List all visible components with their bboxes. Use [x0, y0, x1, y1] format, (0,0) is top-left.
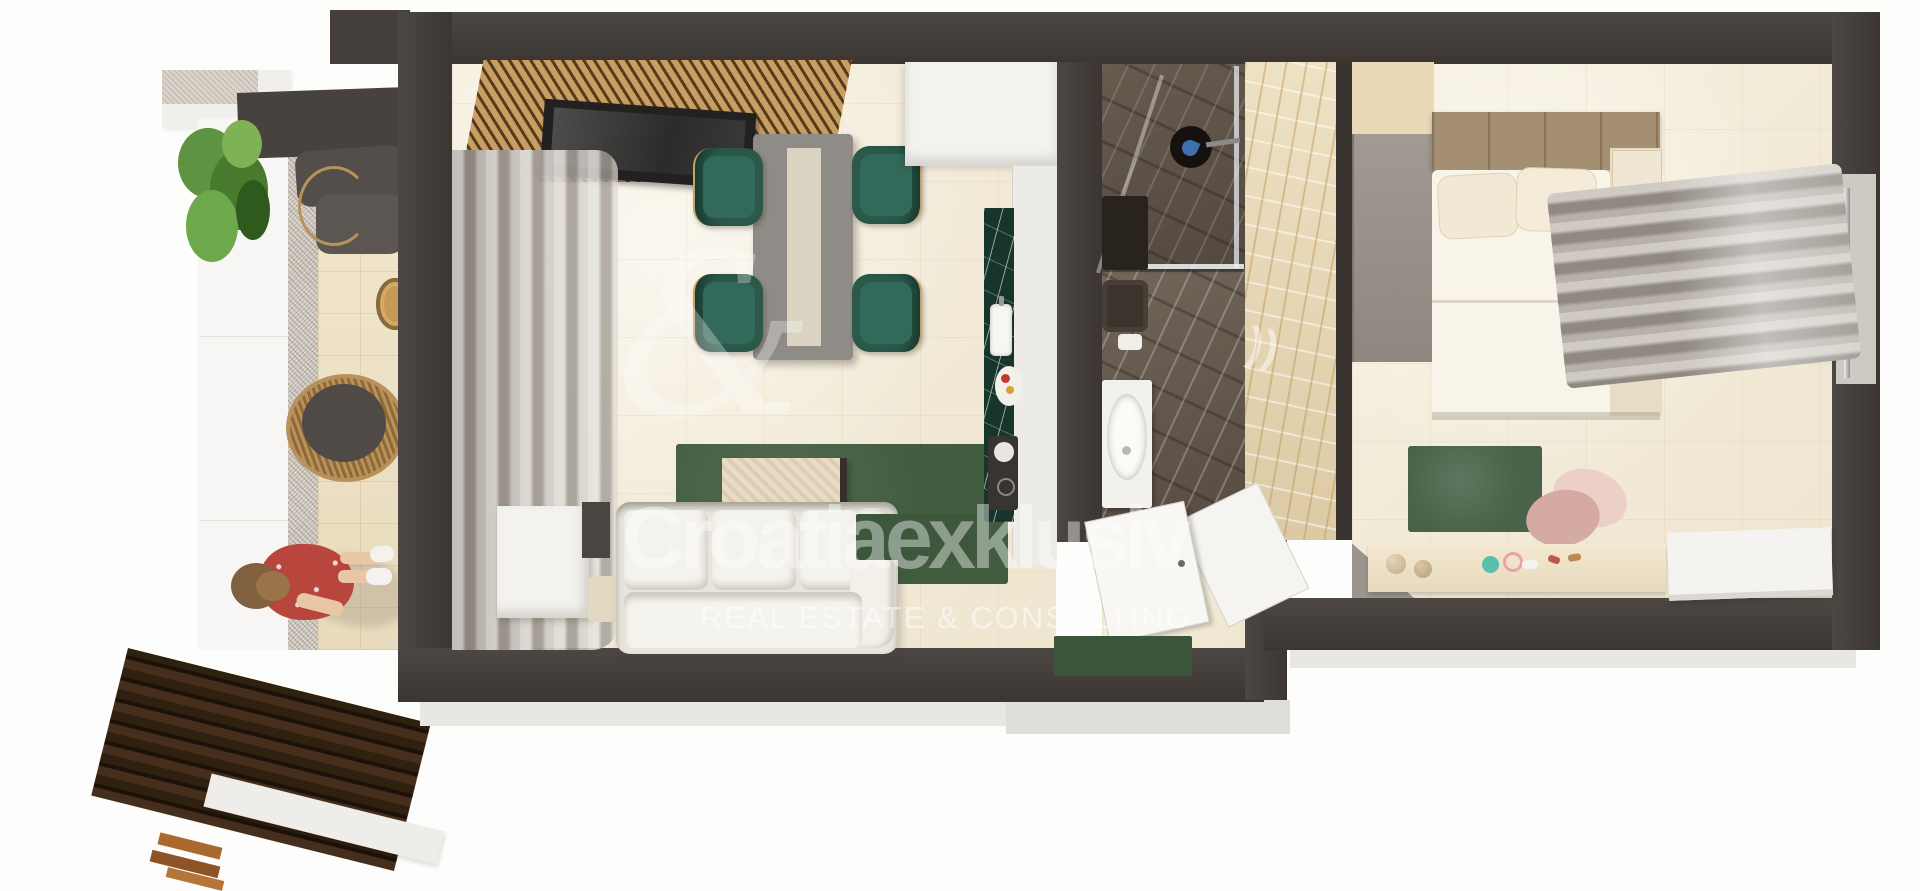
- dining-chair: [852, 274, 922, 352]
- side-table: [497, 506, 589, 618]
- decor-bowl: [1386, 554, 1406, 574]
- dish: [994, 442, 1014, 462]
- pillow: [1436, 172, 1519, 240]
- sink-basin: [1107, 394, 1147, 480]
- basin-tap: [1122, 446, 1131, 455]
- planter-foliage: [236, 180, 270, 240]
- person-shoe: [366, 568, 392, 585]
- decor-bowl: [1414, 560, 1432, 578]
- kitchen-tall-cabinets: [905, 62, 1057, 166]
- planter-foliage: [186, 190, 238, 262]
- fruit: [1006, 386, 1014, 394]
- wall-bedroom-bottom: [1264, 598, 1880, 650]
- outer-slab: [1290, 648, 1856, 668]
- bed-foot-shadow: [1432, 412, 1660, 420]
- bathroom-gold-marble-wall: [1245, 62, 1341, 540]
- watermark-logo-ampersand: &: [615, 225, 815, 450]
- speaker: [582, 502, 610, 558]
- shower-glass-panel: [1234, 66, 1239, 268]
- watermark-brand: Croatiaexklusiv: [622, 494, 1186, 582]
- wall-left: [398, 12, 452, 662]
- wall-joint-line: [200, 336, 288, 337]
- wardrobe: [1352, 134, 1436, 362]
- kitchen-sink: [990, 304, 1012, 356]
- person-hair: [256, 571, 290, 601]
- wardrobe: [1352, 62, 1434, 134]
- wall-top: [398, 12, 1880, 64]
- wall-living-bathroom: [1056, 62, 1102, 542]
- kitchen-tap: [999, 296, 1004, 306]
- green-doormat: [1054, 636, 1192, 676]
- cosmetic-item: [1522, 560, 1538, 569]
- planter-foliage: [222, 120, 262, 168]
- cosmetic-item: [1482, 556, 1499, 573]
- fruit: [1001, 374, 1010, 383]
- soap-dish: [1118, 334, 1142, 350]
- wc-cistern: [1102, 196, 1148, 270]
- hanging-chair-rattan-frame: [298, 166, 370, 246]
- chair-seat: [860, 282, 912, 344]
- wall-edge: [1336, 62, 1352, 540]
- bedroom-curtain: [1547, 163, 1862, 389]
- toilet: [1102, 280, 1148, 332]
- cosmetic-item: [1503, 552, 1523, 572]
- bedroom-rug: [1408, 446, 1542, 532]
- wall-joint-line: [200, 520, 288, 521]
- entry-threshold-slab: [1006, 700, 1290, 734]
- desk: [1667, 527, 1833, 601]
- egg-chair-cushion: [302, 384, 386, 462]
- watermark-tagline: REAL ESTATE & CONSULTING: [700, 600, 1191, 636]
